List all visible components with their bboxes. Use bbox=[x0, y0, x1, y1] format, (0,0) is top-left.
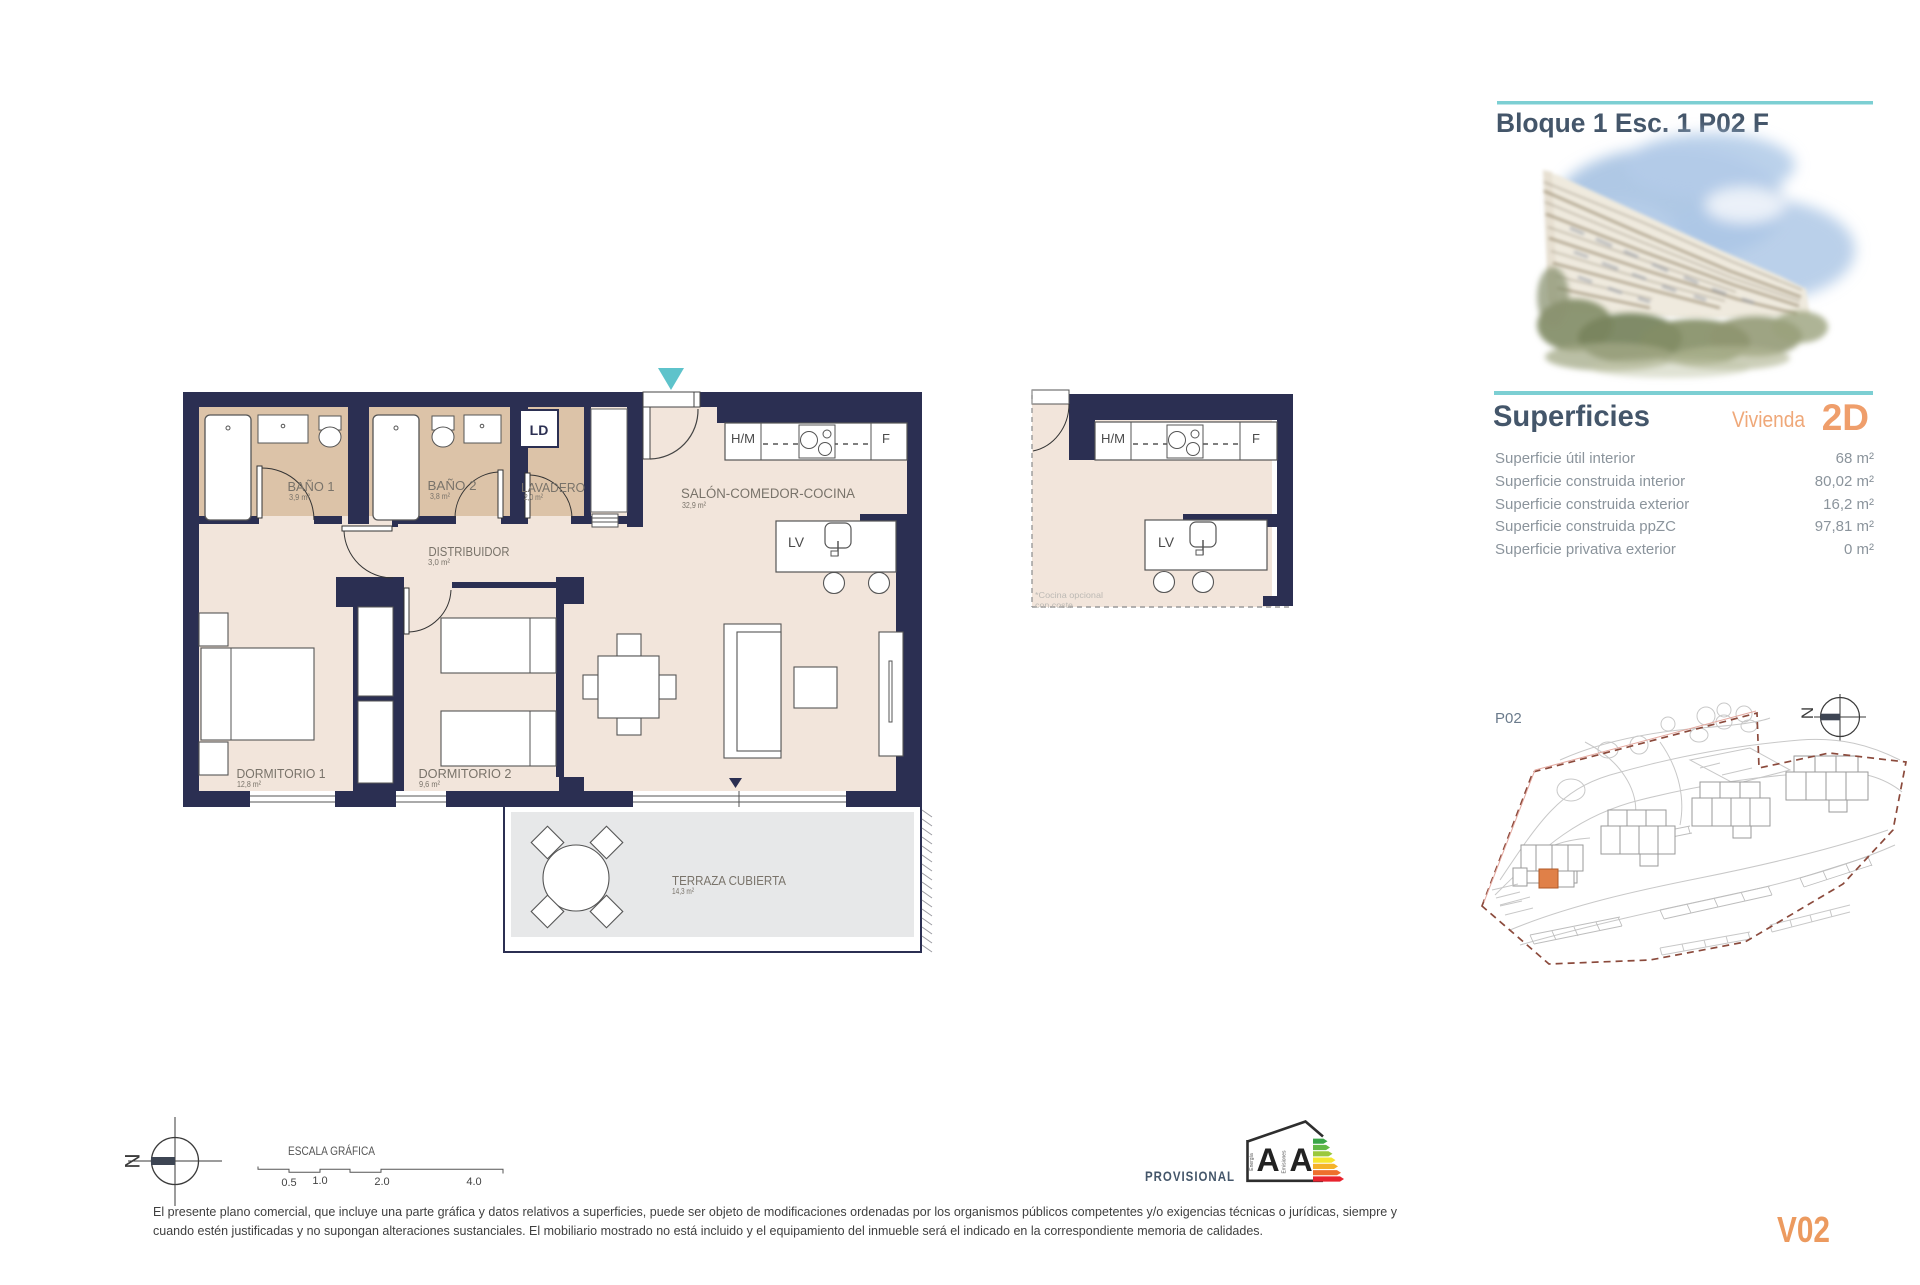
svg-text:F: F bbox=[882, 431, 890, 446]
svg-text:1.0: 1.0 bbox=[312, 1175, 327, 1187]
svg-text:P02: P02 bbox=[1495, 710, 1522, 727]
svg-text:Superficie privativa exterior: Superficie privativa exterior bbox=[1495, 541, 1676, 558]
svg-text:3,0 m²: 3,0 m² bbox=[428, 557, 450, 567]
svg-text:N: N bbox=[1798, 707, 1817, 719]
svg-text:ESCALA GRÁFICA: ESCALA GRÁFICA bbox=[288, 1145, 375, 1158]
svg-text:97,81 m²: 97,81 m² bbox=[1815, 518, 1874, 535]
svg-text:Emisiones: Emisiones bbox=[1282, 1150, 1288, 1174]
svg-text:Energía: Energía bbox=[1249, 1153, 1255, 1171]
svg-text:Bloque 1 Esc. 1 P02 F: Bloque 1 Esc. 1 P02 F bbox=[1496, 108, 1769, 138]
svg-text:cuando estén justificadas y no: cuando estén justificadas y no supongan … bbox=[153, 1223, 1263, 1238]
svg-text:SALÓN-COMEDOR-COCINA: SALÓN-COMEDOR-COCINA bbox=[681, 486, 855, 501]
svg-text:0.5: 0.5 bbox=[281, 1177, 296, 1189]
svg-text:2.0: 2.0 bbox=[374, 1176, 389, 1188]
svg-text:A: A bbox=[1289, 1142, 1312, 1178]
svg-text:4.0: 4.0 bbox=[466, 1176, 481, 1188]
svg-text:2D: 2D bbox=[1822, 397, 1869, 438]
svg-text:PROVISIONAL: PROVISIONAL bbox=[1145, 1168, 1235, 1184]
svg-text:12,8 m²: 12,8 m² bbox=[237, 779, 261, 789]
svg-text:Vivienda: Vivienda bbox=[1732, 407, 1806, 432]
svg-text:0 m²: 0 m² bbox=[1844, 541, 1874, 558]
svg-text:68 m²: 68 m² bbox=[1836, 450, 1874, 467]
svg-text:14,3 m²: 14,3 m² bbox=[672, 886, 694, 896]
svg-text:Superficie construida exterior: Superficie construida exterior bbox=[1495, 496, 1689, 513]
svg-text:Superficie construida interior: Superficie construida interior bbox=[1495, 473, 1685, 490]
svg-text:A: A bbox=[1256, 1142, 1279, 1178]
svg-text:LD: LD bbox=[530, 422, 549, 438]
svg-text:Superficie útil interior: Superficie útil interior bbox=[1495, 450, 1635, 467]
svg-text:2,0 m²: 2,0 m² bbox=[524, 492, 543, 502]
svg-text:*Cocina opcional: *Cocina opcional bbox=[1035, 590, 1103, 600]
svg-text:N: N bbox=[122, 1153, 145, 1168]
svg-text:32,9 m²: 32,9 m² bbox=[682, 500, 706, 510]
svg-text:H/M: H/M bbox=[731, 431, 755, 446]
svg-text:F: F bbox=[1252, 431, 1260, 446]
svg-text:H/M: H/M bbox=[1101, 431, 1125, 446]
svg-text:LV: LV bbox=[788, 534, 805, 550]
svg-text:Superficie construida ppZC: Superficie construida ppZC bbox=[1495, 518, 1676, 535]
svg-text:3,8 m²: 3,8 m² bbox=[430, 491, 450, 501]
svg-text:9,6 m²: 9,6 m² bbox=[419, 779, 440, 789]
svg-text:LV: LV bbox=[1158, 534, 1175, 550]
svg-text:80,02 m²: 80,02 m² bbox=[1815, 473, 1874, 490]
svg-text:V02: V02 bbox=[1777, 1209, 1830, 1250]
svg-text:El presente plano comercial, q: El presente plano comercial, que incluye… bbox=[153, 1204, 1397, 1219]
svg-text:Superficies: Superficies bbox=[1493, 400, 1650, 433]
svg-text:16,2 m²: 16,2 m² bbox=[1823, 496, 1874, 513]
svg-text:con coste: con coste bbox=[1035, 600, 1073, 610]
svg-text:3,9 m²: 3,9 m² bbox=[289, 492, 310, 502]
